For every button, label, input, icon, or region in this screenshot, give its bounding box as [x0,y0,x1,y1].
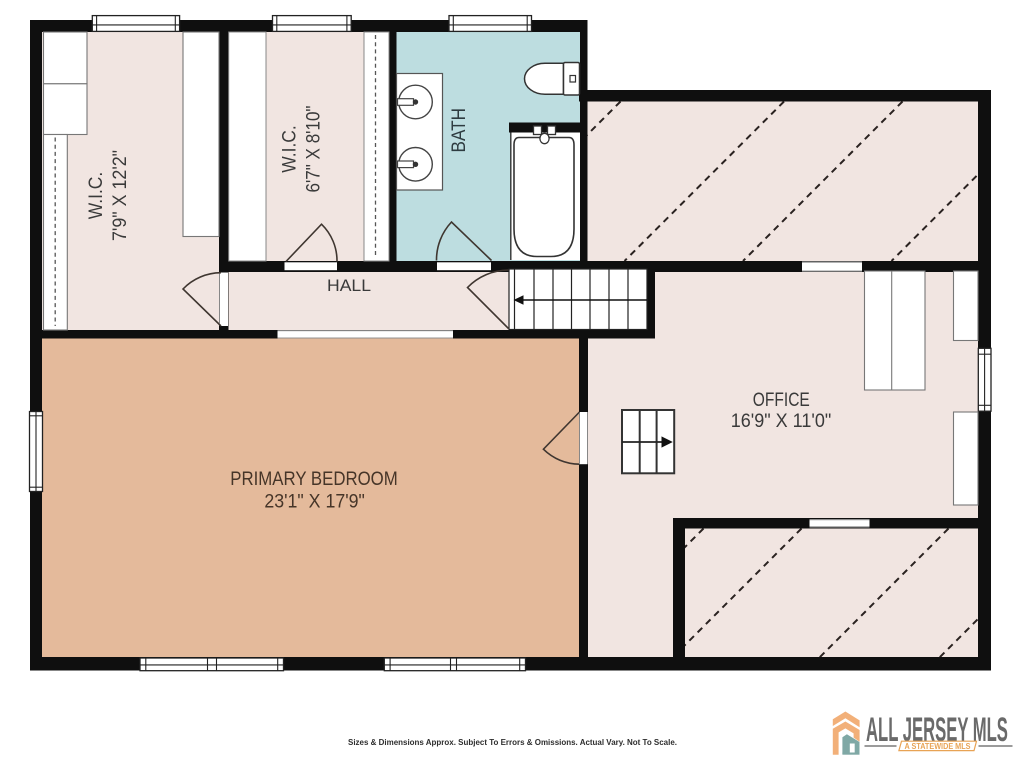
svg-text:Sizes & Dimensions Approx. Sub: Sizes & Dimensions Approx. Subject To Er… [348,738,677,747]
svg-text:23'1" X 17'9": 23'1" X 17'9" [264,492,365,513]
svg-text:16'9" X 11'0": 16'9" X 11'0" [731,411,832,432]
svg-text:6'7" X 8'10": 6'7" X 8'10" [303,106,324,193]
svg-text:W.I.C.: W.I.C. [280,125,301,173]
svg-text:W.I.C.: W.I.C. [86,172,107,220]
svg-text:BATH: BATH [449,108,470,153]
svg-text:7'9" X 12'2": 7'9" X 12'2" [110,150,131,241]
svg-text:PRIMARY BEDROOM: PRIMARY BEDROOM [230,469,398,490]
svg-text:A STATEWIDE MLS: A STATEWIDE MLS [905,741,971,751]
svg-text:HALL: HALL [327,276,371,295]
svg-text:OFFICE: OFFICE [753,390,810,411]
